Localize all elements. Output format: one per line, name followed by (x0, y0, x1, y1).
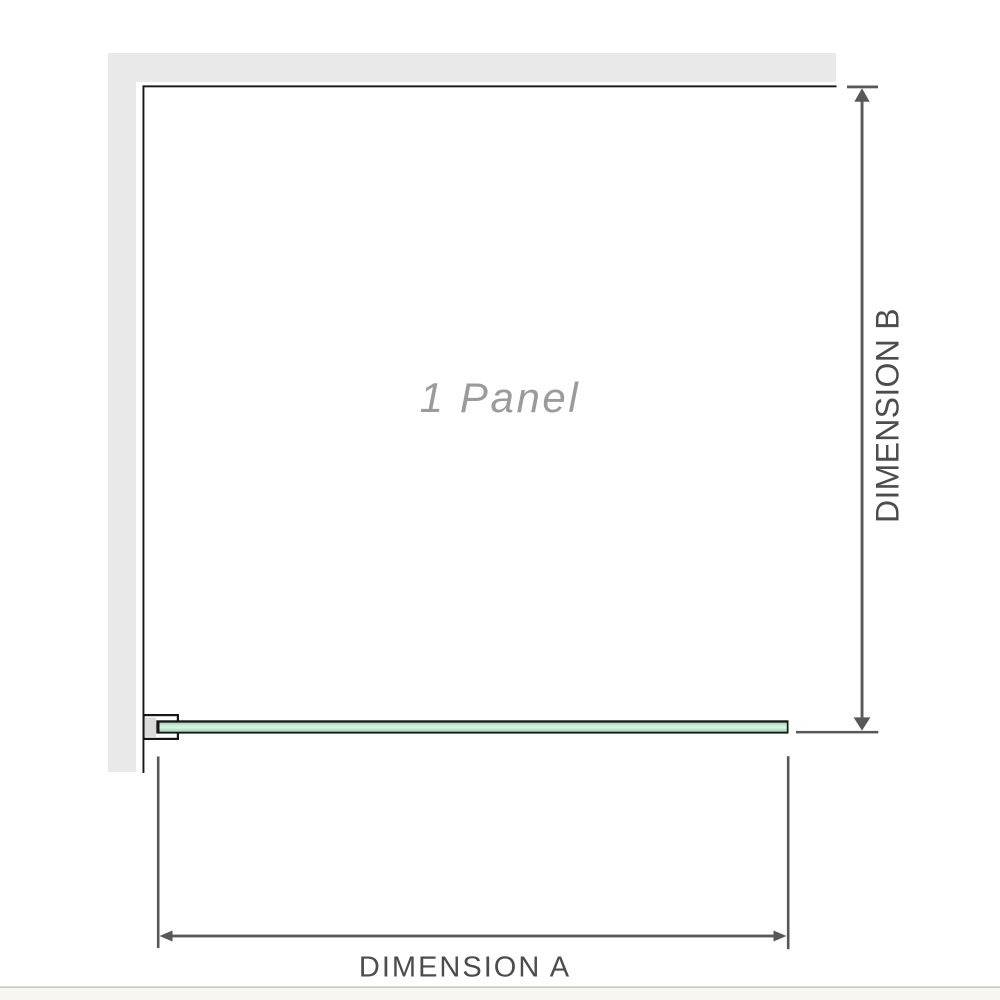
svg-text:DIMENSION B: DIMENSION B (870, 308, 906, 523)
svg-text:1 Panel: 1 Panel (420, 374, 581, 421)
svg-text:DIMENSION A: DIMENSION A (359, 952, 571, 984)
